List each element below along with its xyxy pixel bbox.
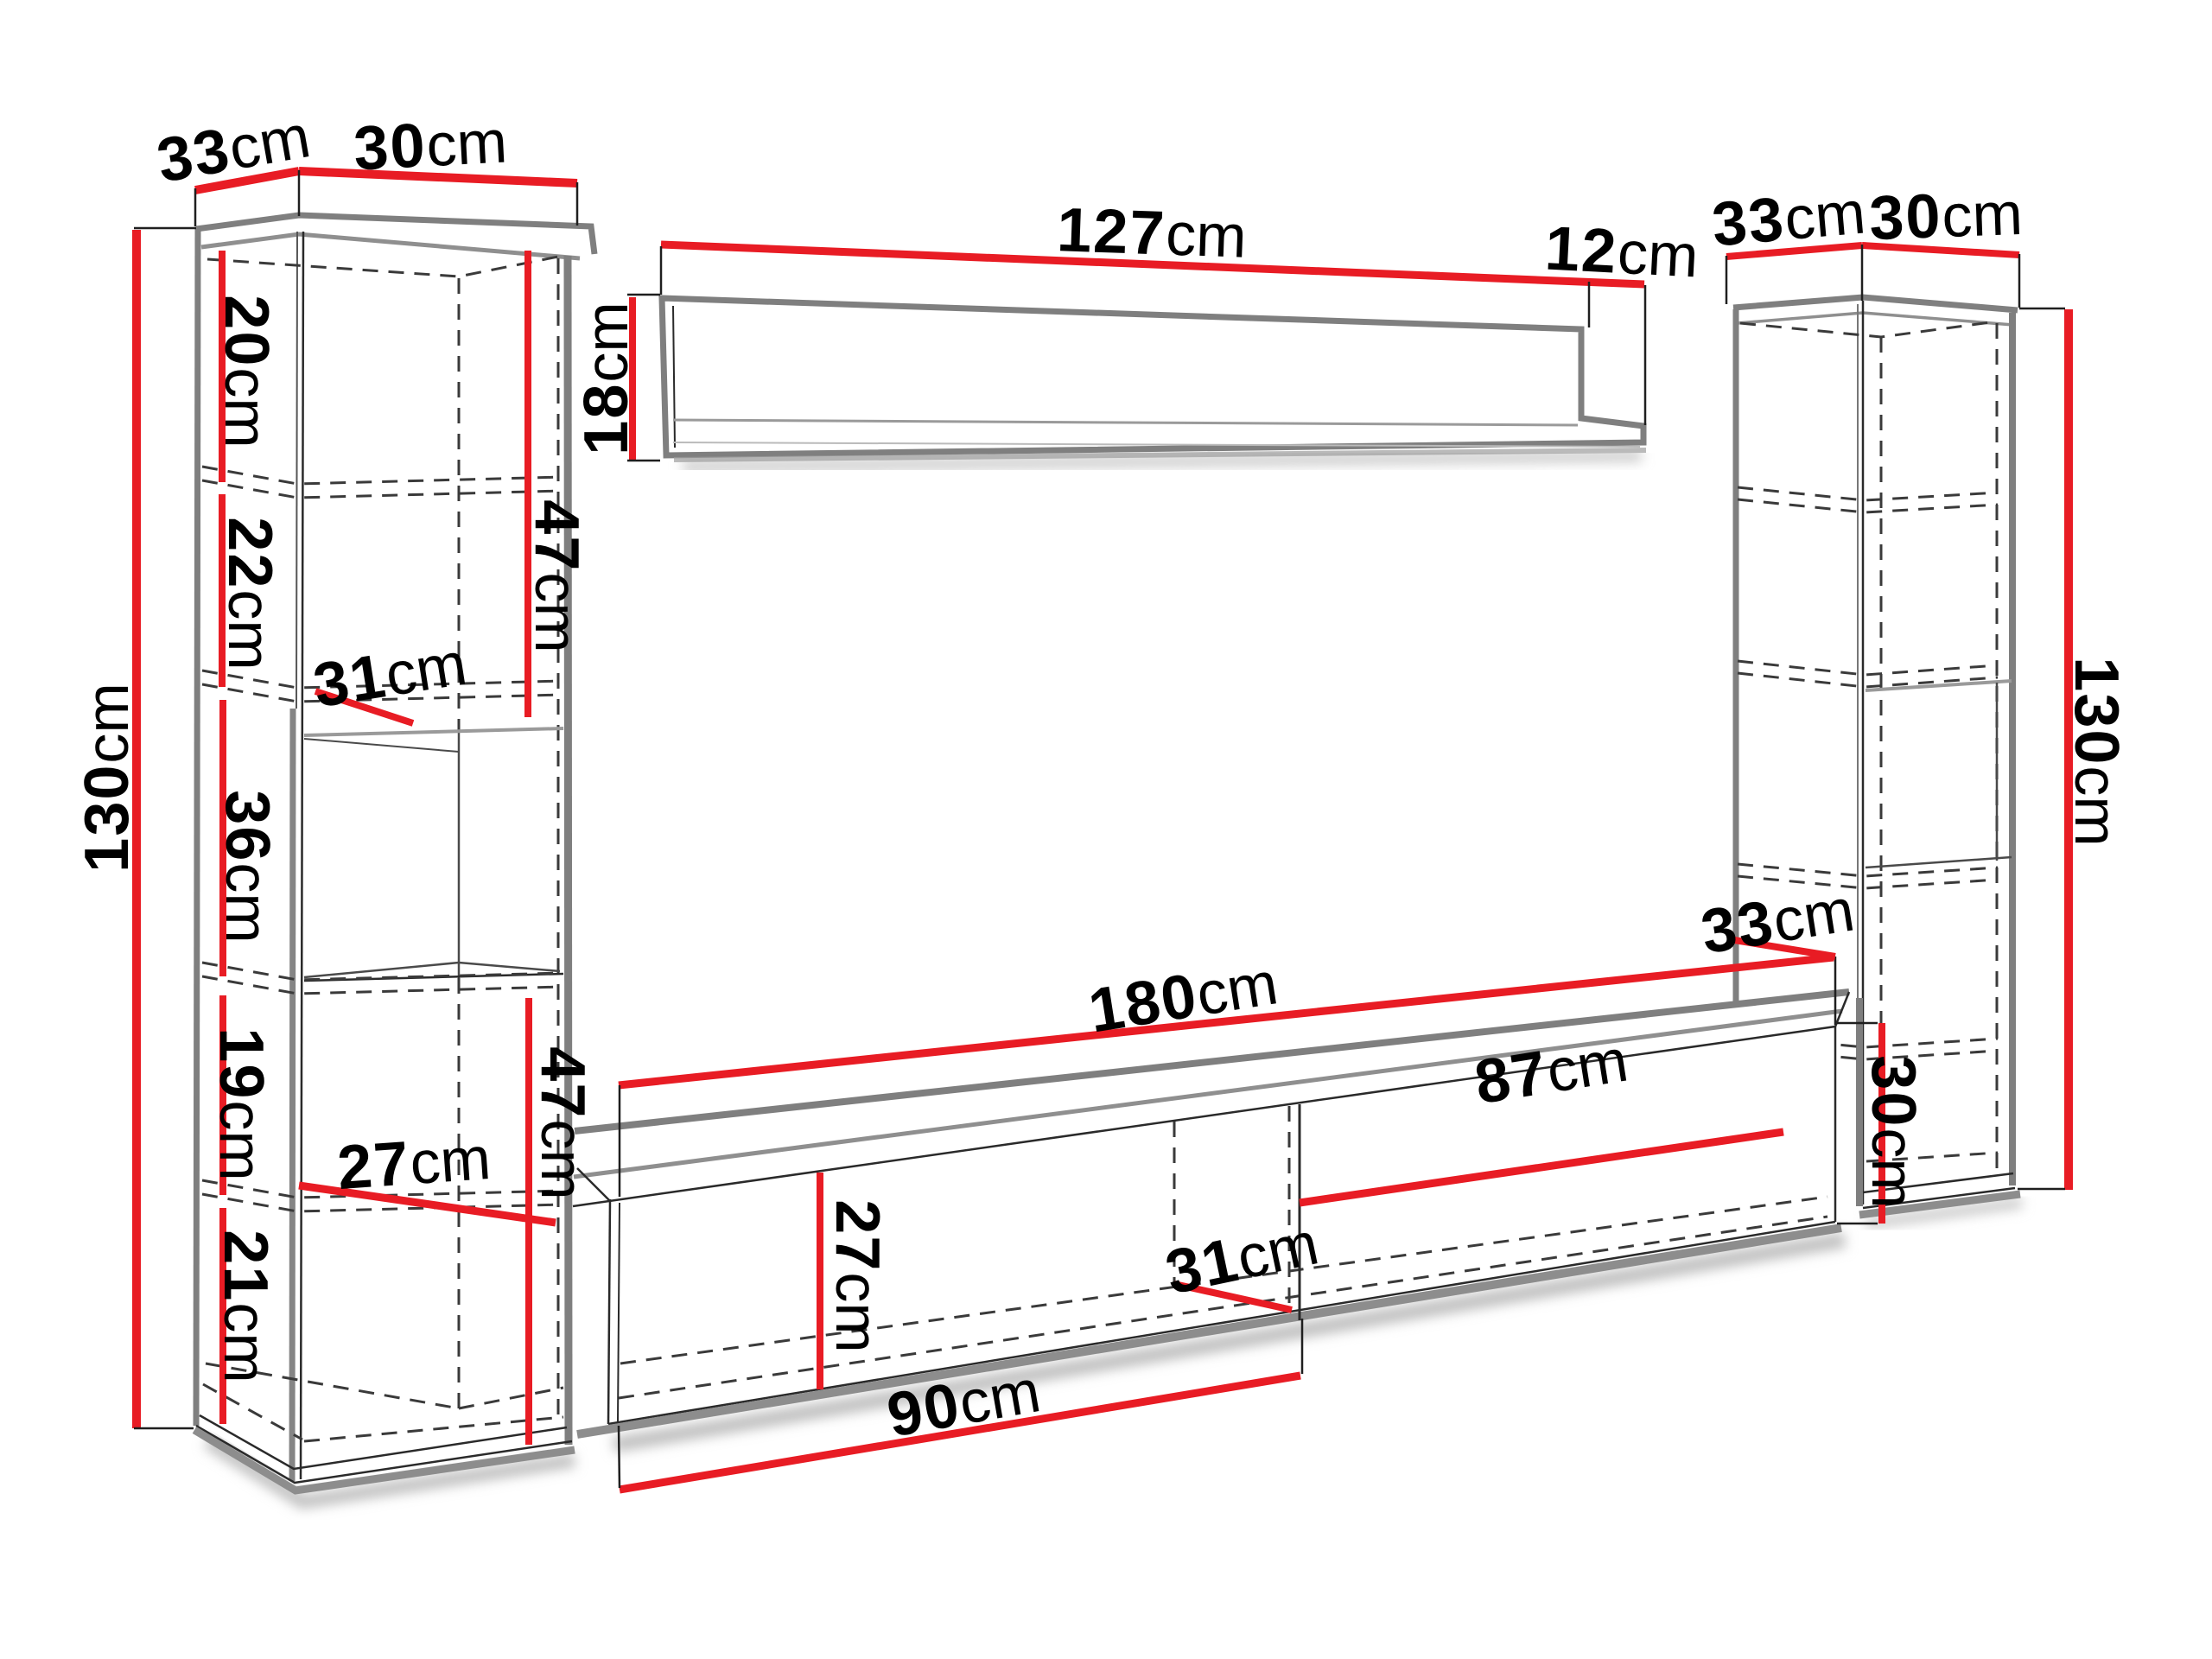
svg-text:12cm: 12cm bbox=[1543, 213, 1700, 290]
svg-text:18cm: 18cm bbox=[572, 302, 641, 454]
svg-text:130cm: 130cm bbox=[2062, 657, 2131, 846]
svg-text:22cm: 22cm bbox=[215, 517, 284, 670]
svg-text:30cm: 30cm bbox=[1868, 179, 2024, 253]
svg-text:47cm: 47cm bbox=[522, 499, 591, 652]
svg-text:21cm: 21cm bbox=[211, 1230, 280, 1382]
svg-text:19cm: 19cm bbox=[207, 1027, 276, 1180]
svg-text:33cm: 33cm bbox=[1709, 177, 1868, 259]
svg-text:30cm: 30cm bbox=[1859, 1055, 1928, 1208]
svg-text:20cm: 20cm bbox=[212, 295, 281, 448]
svg-text:27cm: 27cm bbox=[335, 1123, 493, 1203]
svg-text:36cm: 36cm bbox=[213, 790, 282, 943]
svg-text:127cm: 127cm bbox=[1056, 195, 1248, 271]
svg-text:30cm: 30cm bbox=[352, 106, 508, 183]
svg-text:27cm: 27cm bbox=[823, 1199, 892, 1352]
svg-text:130cm: 130cm bbox=[73, 683, 142, 872]
svg-text:47cm: 47cm bbox=[528, 1046, 597, 1199]
